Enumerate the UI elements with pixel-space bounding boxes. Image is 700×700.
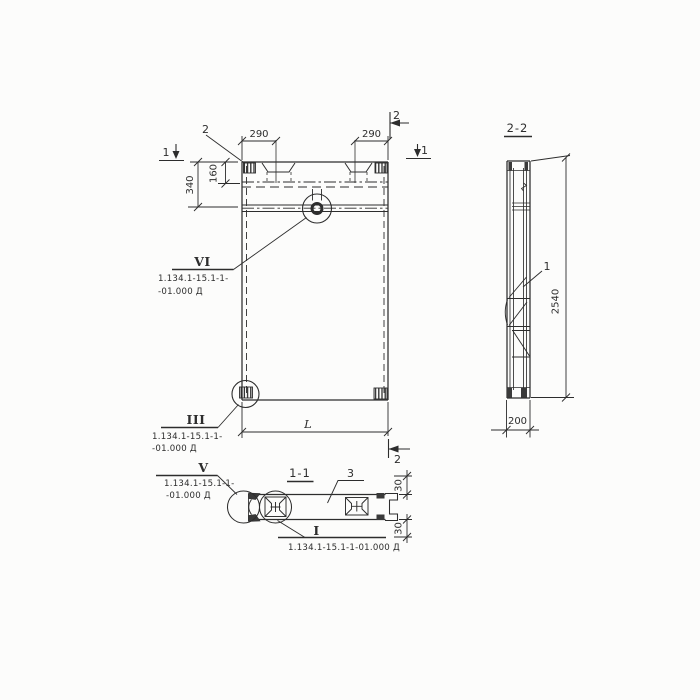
callout-i-ref-line: 1.134.1-15.1-1-01.000 Д [288,543,400,553]
section-1-1-title: 1-1 [289,466,311,480]
callout-v-ref-line1: 1.134.1-15.1-1- [164,479,234,489]
dim-290-right: 290 [362,129,381,140]
section-mark-1-right-label: 1 [421,144,428,157]
leader-line-1 [523,271,542,287]
corner-detail-bottom-left [232,381,259,408]
leader-label-3: 3 [347,467,354,480]
dim-30-bottom: 30 [394,522,405,535]
section-mark-2-bottom-label: 2 [394,453,401,466]
callout-i-numeral: I [313,523,319,538]
panel-technical-drawing: 290 290 340 160 L 1 1 2 2 2 [0,0,700,700]
channel-void-left [265,497,286,517]
callout-iii-ref-line1: 1.134.1-15.1-1- [152,432,222,442]
callout-i: I 1.134.1-15.1-1-01.000 Д [278,521,401,554]
channel-void-middle [346,498,369,516]
callout-vi-ref-line2: -01.000 Д [158,287,203,297]
callout-v-ref-line2: -01.000 Д [166,491,211,501]
leader-line-2 [206,135,245,164]
callout-iii-numeral: III [186,412,205,427]
embedded-box-detail [303,189,332,223]
leader-label-1: 1 [544,260,551,273]
section-mark-2-top-label: 2 [393,109,400,122]
callout-iii-ref-line2: -01.000 Д [152,444,197,454]
section-mark-1-left-label: 1 [163,146,170,159]
dim-340: 340 [185,175,196,194]
section-2-2-title: 2-2 [507,121,529,135]
callout-vi-ref-line1: 1.134.1-15.1-1- [158,274,228,284]
section-2-2-view [505,161,530,398]
section-2-2-dimensions [491,154,574,438]
callout-vi-numeral: VI [193,254,211,269]
callout-vi: VI 1.134.1-15.1-1- -01.000 Д [158,218,307,298]
detail-circle-v [228,491,260,523]
dim-length-L: L [303,417,312,431]
hatch-block-top-left [244,163,256,173]
elevation-view [232,140,388,408]
drawing-sheet: 290 290 340 160 L 1 1 2 2 2 [0,0,700,700]
hatch-block-top-right [375,163,387,173]
dim-200: 200 [508,416,527,427]
callout-v: V 1.134.1-15.1-1- -01.000 Д [156,460,237,501]
dim-290-left: 290 [249,129,268,140]
callout-v-numeral: V [197,460,208,475]
hatch-block-bottom-right [374,388,387,399]
dim-160: 160 [209,164,220,183]
section-1-1-view [228,491,398,523]
leader-label-2: 2 [202,123,209,136]
callout-iii: III 1.134.1-15.1-1- -01.000 Д [152,405,239,455]
dim-30-top: 30 [394,479,405,492]
dim-2540: 2540 [551,289,562,314]
